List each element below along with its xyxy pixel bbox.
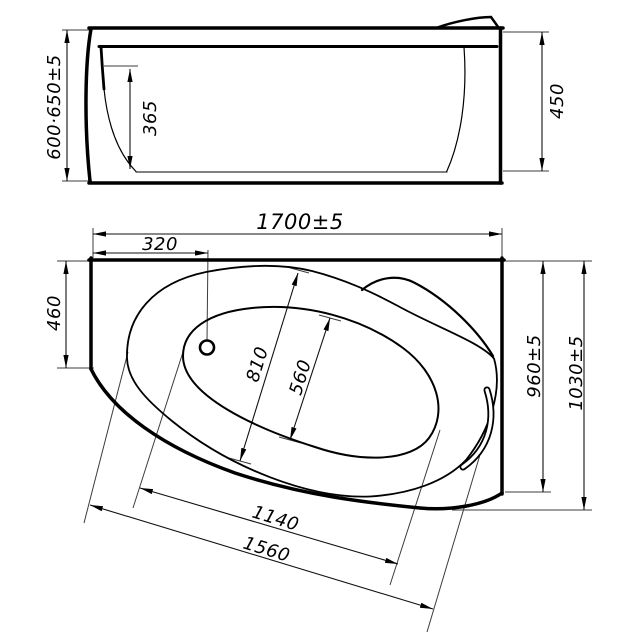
dim-label-basin-length: 1140 bbox=[250, 502, 302, 536]
dim-side-width: 960±5 bbox=[524, 261, 545, 492]
bathtub-technical-drawing: 600·650±5 365 450 bbox=[0, 0, 640, 640]
dim-basin-width: 560 bbox=[285, 318, 330, 440]
dim-inner-depth: 365 bbox=[130, 69, 161, 169]
inner-wall-left bbox=[104, 89, 136, 172]
dim-label-height-range: 600·650±5 bbox=[44, 54, 65, 159]
dim-corner-side: 460 bbox=[44, 261, 66, 368]
dim-label-basin-width: 560 bbox=[285, 357, 316, 397]
plan-extension-lines bbox=[57, 228, 592, 632]
dim-shell-height: 450 bbox=[542, 32, 568, 171]
left-panel-edge bbox=[86, 29, 91, 181]
dim-label-front-edge-length: 1560 bbox=[241, 533, 293, 567]
bathtub-drawing-page: 600·650±5 365 450 bbox=[0, 0, 640, 640]
dim-drain-offset: 320 bbox=[93, 234, 208, 255]
dim-label-corner-side: 460 bbox=[44, 295, 65, 331]
drain-hole bbox=[200, 341, 214, 355]
dim-label-side-width: 960±5 bbox=[524, 334, 545, 397]
dim-label-drain-offset: 320 bbox=[142, 234, 178, 255]
dim-height-range: 600·650±5 bbox=[44, 30, 67, 181]
side-extension-lines bbox=[62, 30, 549, 181]
dim-label-overall-length: 1700±5 bbox=[256, 210, 343, 234]
dim-overall-width: 1030±5 bbox=[566, 261, 587, 510]
plan-view: 1700±5 320 460 960±5 1030±5 810 560 114 bbox=[44, 210, 592, 632]
side-view-outline bbox=[86, 17, 503, 183]
dim-overall-length: 1700±5 bbox=[93, 210, 502, 234]
side-view: 600·650±5 365 450 bbox=[44, 17, 568, 183]
dim-label-rim-opening-width: 810 bbox=[242, 344, 273, 384]
basin-outline bbox=[183, 307, 438, 458]
dim-label-inner-depth: 365 bbox=[140, 100, 161, 136]
inner-wall-left-upper bbox=[101, 47, 104, 89]
dim-rim-opening-width: 810 bbox=[240, 273, 298, 461]
drain-leader-line bbox=[207, 250, 208, 341]
dim-label-overall-width: 1030±5 bbox=[566, 335, 587, 410]
dim-label-shell-height: 450 bbox=[547, 83, 568, 119]
inner-wall-right bbox=[447, 47, 465, 172]
